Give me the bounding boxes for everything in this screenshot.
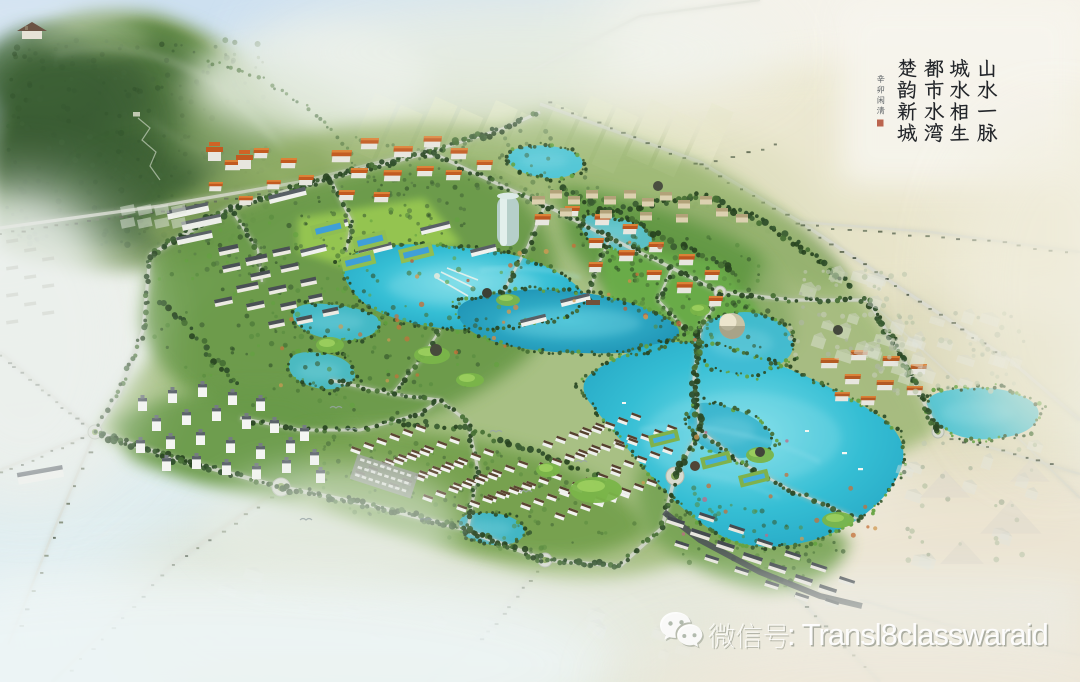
svg-text:: Transl8classwaraid: : Transl8classwaraid — [787, 617, 1048, 652]
